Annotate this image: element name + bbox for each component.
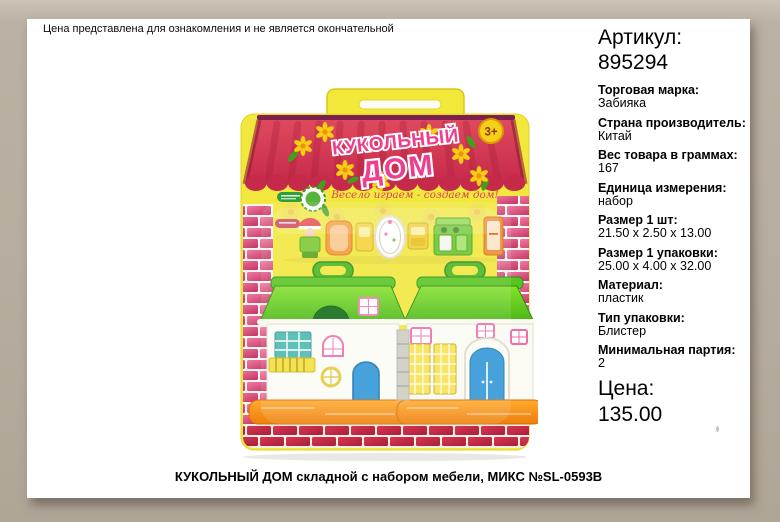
field-value: набор xyxy=(598,195,774,209)
price-block: Цена: 135.00 xyxy=(598,376,774,428)
field-label: Единица измерения: xyxy=(598,181,774,195)
field-label: Страна производитель: xyxy=(598,116,774,130)
catalog-card-sheet: Цена представлена для ознакомления и не … xyxy=(27,19,750,498)
field-label: Размер 1 упаковки: xyxy=(598,246,774,260)
field-label: Торговая марка: xyxy=(598,83,774,97)
scan-artifact-dot xyxy=(716,426,719,432)
awning: КУКОЛЬНЫЙ ДОМ 3+ xyxy=(245,115,525,192)
price-label: Цена: xyxy=(598,376,774,402)
price-value: 135.00 xyxy=(598,402,774,428)
product-photo-svg: КУКОЛЬНЫЙ ДОМ 3+ Весело играем - создаем… xyxy=(233,84,538,462)
field-value: 2 xyxy=(598,357,774,371)
field-value: Забияка xyxy=(598,97,774,111)
hang-slot xyxy=(359,100,441,109)
article-block: Артикул: 895294 xyxy=(598,25,774,75)
product-caption: КУКОЛЬНЫЙ ДОМ складной с набором мебели,… xyxy=(27,469,750,484)
field-label: Минимальная партия: xyxy=(598,343,774,357)
field-weight: Вес товара в граммах: 167 xyxy=(598,148,774,176)
field-item-size: Размер 1 шт: 21.50 x 2.50 x 13.00 xyxy=(598,213,774,241)
blister-gloss xyxy=(261,202,511,424)
field-package-type: Тип упаковки: Блистер xyxy=(598,311,774,339)
awning-top-border xyxy=(257,115,515,120)
product-photo: КУКОЛЬНЫЙ ДОМ 3+ Весело играем - создаем… xyxy=(233,84,538,462)
field-label: Тип упаковки: xyxy=(598,311,774,325)
field-brand: Торговая марка: Забияка xyxy=(598,83,774,111)
field-package-size: Размер 1 упаковки: 25.00 x 4.00 x 32.00 xyxy=(598,246,774,274)
field-value: 167 xyxy=(598,162,774,176)
package-tagline: Весело играем - создаем дом! xyxy=(330,189,499,201)
field-list: Торговая марка: Забияка Страна производи… xyxy=(598,83,774,371)
pink-window-3 xyxy=(511,330,527,344)
field-value: Китай xyxy=(598,130,774,144)
field-value: 21.50 x 2.50 x 13.00 xyxy=(598,227,774,241)
product-details: Артикул: 895294 Торговая марка: Забияка … xyxy=(598,25,774,428)
field-min-batch: Минимальная партия: 2 xyxy=(598,343,774,371)
disclaimer-text: Цена представлена для ознакомления и не … xyxy=(43,23,394,36)
field-value: пластик xyxy=(598,292,774,306)
blister-highlight xyxy=(273,208,499,234)
field-label: Материал: xyxy=(598,278,774,292)
eco-ribbon-badge xyxy=(277,192,304,202)
field-value: Блистер xyxy=(598,325,774,339)
age-badge-text: 3+ xyxy=(484,127,497,139)
card-shadow xyxy=(243,453,527,461)
field-value: 25.00 x 4.00 x 32.00 xyxy=(598,260,774,274)
article-value: 895294 xyxy=(598,50,774,75)
field-country: Страна производитель: Китай xyxy=(598,116,774,144)
field-unit: Единица измерения: набор xyxy=(598,181,774,209)
field-material: Материал: пластик xyxy=(598,278,774,306)
article-label: Артикул: xyxy=(598,25,774,50)
field-label: Вес товара в граммах: xyxy=(598,148,774,162)
age-badge: 3+ xyxy=(479,119,503,143)
field-label: Размер 1 шт: xyxy=(598,213,774,227)
